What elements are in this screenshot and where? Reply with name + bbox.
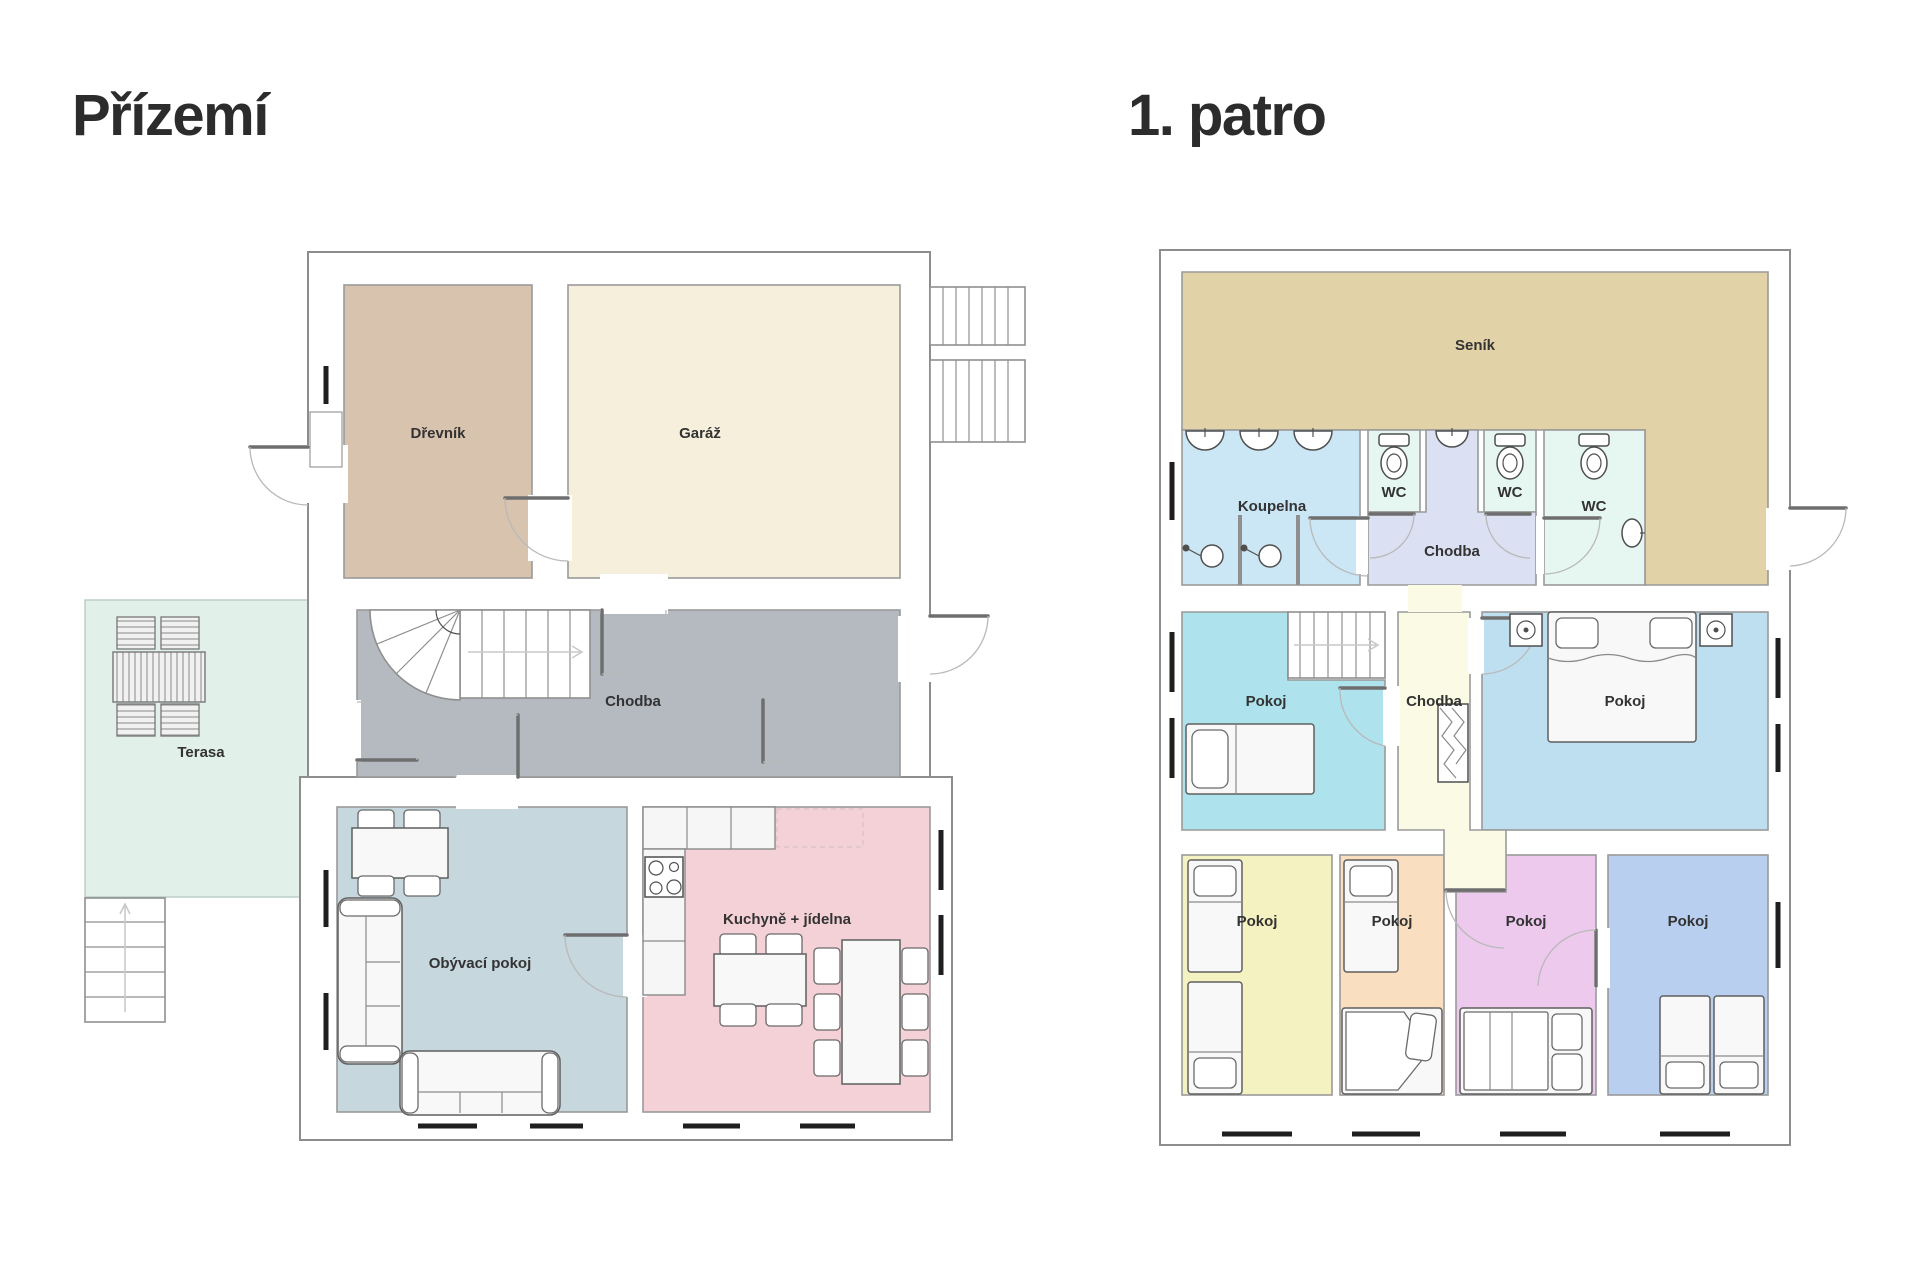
label-terasa: Terasa xyxy=(177,744,225,761)
door-chodba-exterior-right xyxy=(898,616,988,682)
staircase-first-floor xyxy=(1288,612,1385,678)
label-pokoj-ne: Pokoj xyxy=(1605,693,1646,710)
sofa-vertical xyxy=(338,898,402,1064)
plans-drawing: Dřevník Garáž Chodba Terasa Obývací poko… xyxy=(0,0,1920,1280)
label-chodba-ground: Chodba xyxy=(605,693,661,710)
label-wc-3: WC xyxy=(1582,498,1607,515)
terrace-steps xyxy=(85,898,165,1022)
label-koupelna: Koupelna xyxy=(1238,498,1307,515)
toilet-wc1 xyxy=(1379,434,1409,479)
label-pokoj-nw: Pokoj xyxy=(1246,693,1287,710)
exterior-stairs xyxy=(930,287,1025,442)
label-chodba-horni: Chodba xyxy=(1424,543,1480,560)
label-pokoj-s2: Pokoj xyxy=(1506,913,1547,930)
label-pokoj-s1: Pokoj xyxy=(1372,913,1413,930)
label-pokoj-sw: Pokoj xyxy=(1237,913,1278,930)
label-drevnik: Dřevník xyxy=(410,425,466,442)
wardrobe xyxy=(1438,704,1468,782)
door-exterior-right xyxy=(1766,508,1846,570)
label-chodba-stred: Chodba xyxy=(1406,693,1462,710)
stove xyxy=(645,857,683,897)
corridor-connector xyxy=(1408,585,1462,612)
first-floor-plan: Seník Koupelna WC WC WC Chodba Pokoj Cho… xyxy=(1160,250,1846,1145)
label-obyvaci-pokoj: Obývací pokoj xyxy=(429,955,532,972)
sofa-horizontal xyxy=(400,1051,560,1115)
label-garaz: Garáž xyxy=(679,425,721,442)
wall-recess xyxy=(310,412,342,467)
toilet-wc2 xyxy=(1495,434,1525,479)
bed-pokoj-s2 xyxy=(1460,1008,1592,1094)
label-pokoj-se: Pokoj xyxy=(1668,913,1709,930)
floor-plan-sheet: Přízemí 1. patro xyxy=(0,0,1920,1280)
bed-pokoj-nw xyxy=(1186,724,1314,794)
room-garaz xyxy=(568,285,900,578)
label-kuchyne: Kuchyně + jídelna xyxy=(723,911,852,928)
long-dining-table xyxy=(814,940,928,1084)
label-wc-2: WC xyxy=(1498,484,1523,501)
label-wc-1: WC xyxy=(1382,484,1407,501)
label-senik: Seník xyxy=(1455,337,1496,354)
ground-floor-plan: Dřevník Garáž Chodba Terasa Obývací poko… xyxy=(85,252,1025,1140)
